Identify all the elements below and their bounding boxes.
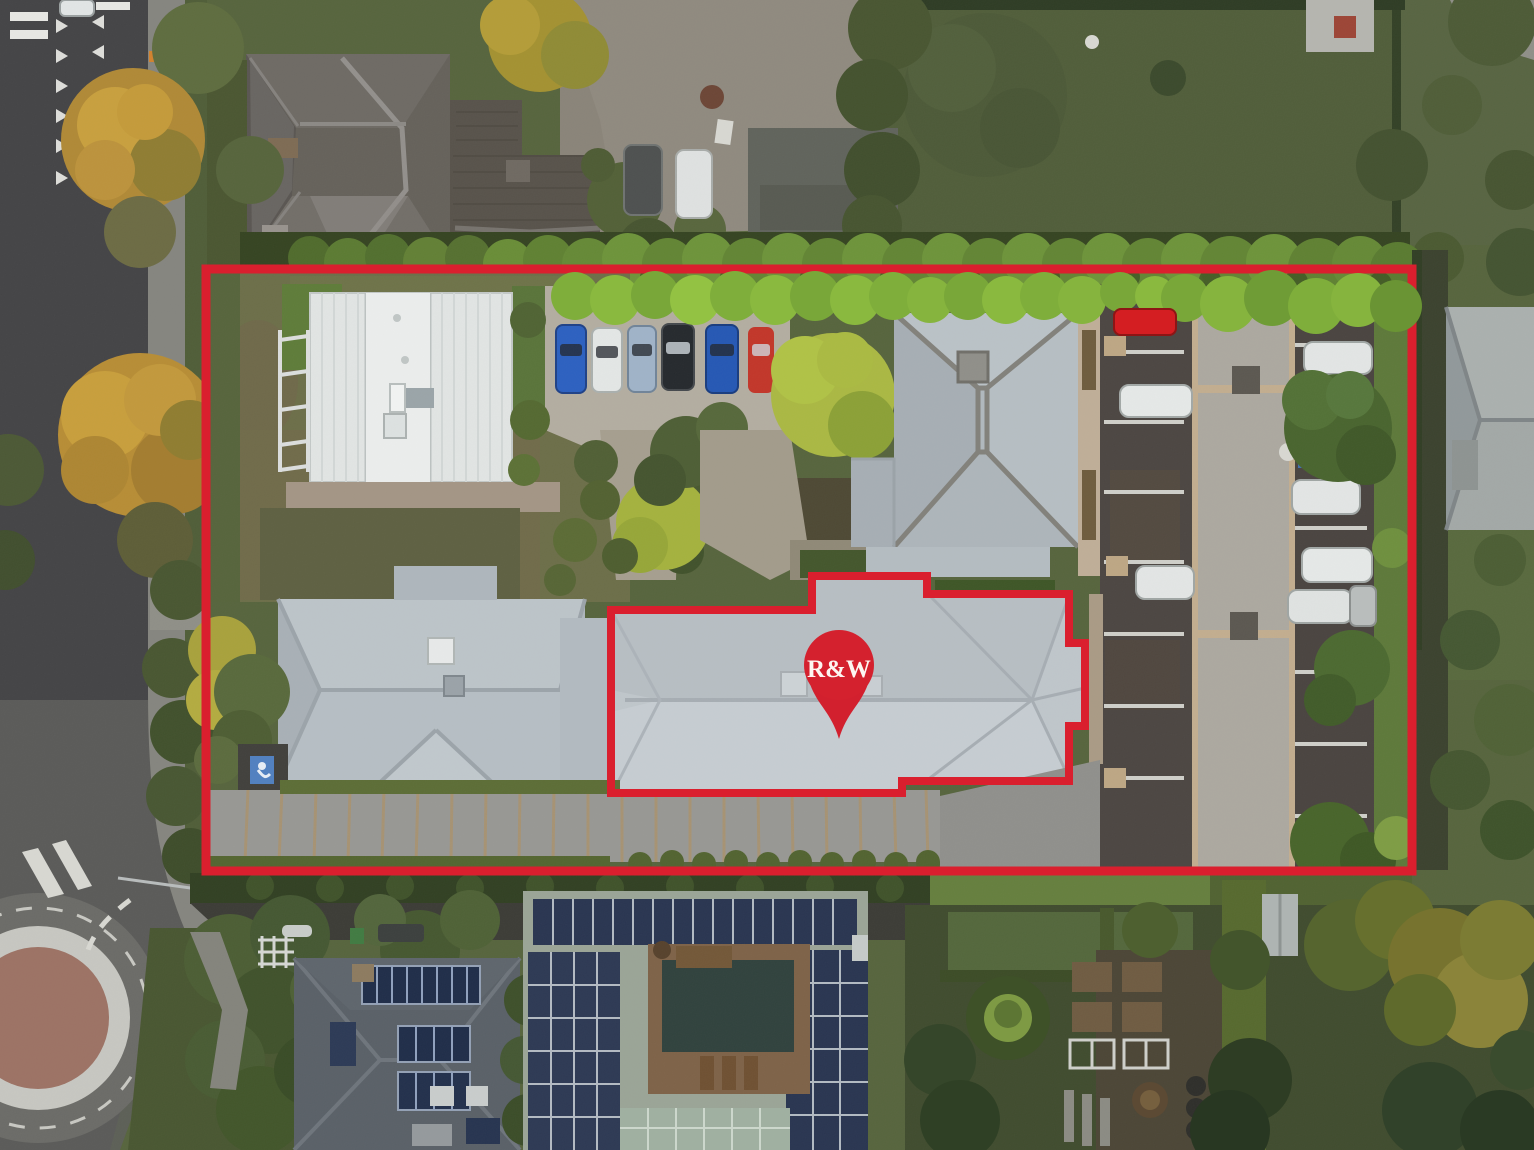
svg-text:R&W: R&W bbox=[807, 656, 871, 683]
